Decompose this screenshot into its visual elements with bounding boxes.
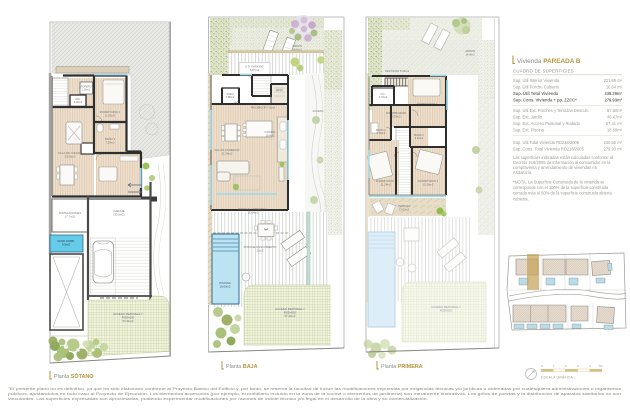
svg-text:2.08m2: 2.08m2 bbox=[82, 89, 91, 92]
svg-text:4.09m2: 4.09m2 bbox=[377, 131, 386, 135]
svg-text:Planta BAJA: Planta BAJA bbox=[226, 364, 258, 370]
svg-text:15.26m2: 15.26m2 bbox=[423, 183, 434, 187]
svg-text:ACCESO: ACCESO bbox=[313, 109, 324, 113]
svg-text:221.65 m²: 221.65 m² bbox=[604, 78, 623, 83]
svg-text:Sup. Útil Porche Cubierto: Sup. Útil Porche Cubierto bbox=[513, 85, 560, 90]
svg-text:11.85m2: 11.85m2 bbox=[105, 114, 116, 118]
svg-text:Sup. Útil Ext. Porches y Terra: Sup. Útil Ext. Porches y Terrazas Descub… bbox=[513, 108, 589, 113]
svg-text:cerrada más el 50% de la: cerrada más el 50% de la superficie cons… bbox=[513, 191, 612, 196]
svg-text:3.91m2: 3.91m2 bbox=[415, 136, 424, 140]
svg-text:57.41m2: 57.41m2 bbox=[123, 319, 134, 323]
svg-text:7.28m2: 7.28m2 bbox=[105, 141, 115, 145]
svg-text:Sup. Ext. Acceso Peatonal y Ro: Sup. Ext. Acceso Peatonal y Rodado bbox=[513, 121, 581, 126]
svg-text:279.93m²: 279.93m² bbox=[604, 98, 622, 103]
svg-text:67.50m²: 67.50m² bbox=[607, 108, 623, 113]
svg-text:5m: 5m bbox=[599, 364, 604, 368]
svg-text:12m2: 12m2 bbox=[257, 249, 264, 253]
svg-text:cubierta.: cubierta. bbox=[513, 196, 529, 201]
svg-text:(7.7m2): (7.7m2) bbox=[65, 215, 75, 219]
svg-text:Planta PRIMERA: Planta PRIMERA bbox=[381, 364, 423, 370]
svg-text:57.41 m²: 57.41 m² bbox=[606, 121, 623, 126]
svg-text:10.6m2: 10.6m2 bbox=[265, 134, 275, 138]
svg-text:Sup. Útil Interior Vivienda: Sup. Útil Interior Vivienda bbox=[513, 78, 560, 83]
svg-text:"El presente plano no es defin: "El presente plano no es definitivo, ya … bbox=[8, 387, 621, 391]
svg-text:279.93 m²: 279.93 m² bbox=[604, 147, 623, 152]
svg-text:CUADRO DE SUPERFICIES: CUADRO DE SUPERFICIES bbox=[513, 69, 574, 74]
svg-text:Sup. Cons. Total Vivienda RD21: Sup. Cons. Total Vivienda RD218/2005 bbox=[513, 147, 585, 152]
svg-text:2.73m2: 2.73m2 bbox=[379, 95, 388, 99]
svg-text:11.24m2: 11.24m2 bbox=[381, 183, 392, 187]
svg-text:238.29m²: 238.29m² bbox=[604, 91, 622, 96]
svg-text:13.62m2: 13.62m2 bbox=[399, 208, 410, 212]
svg-text:RECIBIDOR 7.6m2: RECIBIDOR 7.6m2 bbox=[251, 106, 276, 110]
svg-text:DESP.: DESP. bbox=[276, 88, 284, 92]
svg-text:18.60m²: 18.60m² bbox=[607, 127, 623, 132]
svg-text:16.64 m²: 16.64 m² bbox=[606, 85, 623, 90]
svg-text:VESTIDOR 5.06m2: VESTIDOR 5.06m2 bbox=[385, 69, 410, 73]
svg-text:*NOTA: La Superficie Co: *NOTA: La Superficie Construida de la vi… bbox=[513, 179, 605, 184]
svg-text:TERRAZA: TERRAZA bbox=[398, 204, 410, 208]
svg-text:18.60m2: 18.60m2 bbox=[220, 285, 231, 289]
svg-text:Andalucía.: Andalucía. bbox=[513, 170, 532, 175]
svg-text:públicos, ajustándolos en todo: públicos, ajustándolos en todo caso al P… bbox=[8, 392, 621, 396]
svg-text:(33.5m2): (33.5m2) bbox=[113, 213, 124, 217]
svg-text:25.65m2: 25.65m2 bbox=[65, 155, 76, 159]
svg-text:Sup. Cons. Vivienda + pp. ZZCC: Sup. Cons. Vivienda + pp. ZZCC* bbox=[513, 98, 577, 103]
svg-text:31.56m2: 31.56m2 bbox=[222, 152, 233, 156]
svg-text:RODADO: RODADO bbox=[440, 309, 453, 313]
svg-text:Sup. Ext. Jardín: Sup. Ext. Jardín bbox=[513, 114, 543, 119]
svg-text:Planta SÓTANO: Planta SÓTANO bbox=[54, 372, 93, 380]
svg-text:1.98m2: 1.98m2 bbox=[226, 95, 235, 99]
svg-text:6.07m2: 6.07m2 bbox=[250, 68, 260, 72]
svg-text:Vivienda PAREADA B: Vivienda PAREADA B bbox=[517, 58, 581, 65]
svg-text:5.9m3: 5.9m3 bbox=[62, 243, 70, 247]
svg-text:ESCALA GRÁFICA: ESCALA GRÁFICA bbox=[541, 375, 574, 379]
svg-text:16.64m2: 16.64m2 bbox=[248, 211, 259, 215]
svg-text:46.47m²: 46.47m² bbox=[607, 114, 623, 119]
svg-text:3.18m2: 3.18m2 bbox=[74, 101, 83, 104]
svg-text:8.56m2: 8.56m2 bbox=[391, 115, 401, 119]
svg-text:240.82 m²: 240.82 m² bbox=[604, 140, 623, 145]
svg-text:Sup. Útil Total Vivienda RD218: Sup. Útil Total Vivienda RD218/2005 bbox=[513, 140, 580, 145]
svg-text:vinculantes. Las superficies e: vinculantes. Las superficies expresadas … bbox=[8, 397, 428, 401]
svg-text:14.8m2: 14.8m2 bbox=[465, 53, 475, 57]
svg-text:57.41m2: 57.41m2 bbox=[285, 314, 296, 318]
svg-text:Sup. Ext. Piscina: Sup. Ext. Piscina bbox=[513, 127, 545, 132]
svg-text:corresponde con el 100% de: corresponde con el 100% de la superficie… bbox=[513, 185, 609, 190]
svg-text:Sup. Útil Total Vivienda: Sup. Útil Total Vivienda bbox=[513, 91, 559, 96]
